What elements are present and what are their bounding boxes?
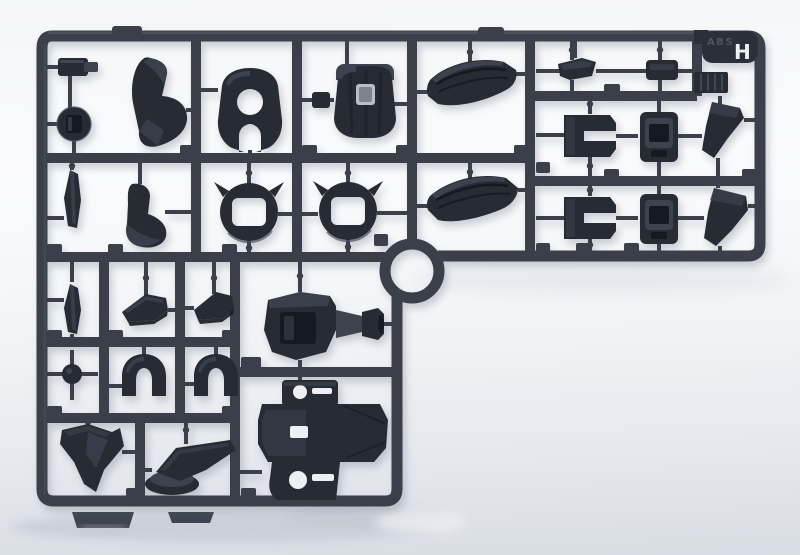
part-torso-core — [258, 380, 388, 500]
part-wedge-vent-left — [122, 294, 168, 326]
runner-letter: H — [734, 40, 751, 64]
part-cylinder-drum — [334, 64, 396, 138]
part-c-bracket-upper — [564, 115, 616, 157]
part-small-cap-right — [646, 60, 678, 80]
top-edge-tab — [478, 27, 504, 36]
runner-photo-canvas: ABS H — [0, 0, 800, 555]
part-hooded-cover — [218, 68, 282, 152]
frame-highlight — [44, 44, 47, 494]
part-foot-with-base — [145, 440, 236, 495]
ridged-block — [694, 72, 728, 93]
part-collar-ring-right — [313, 181, 383, 241]
part-latch-clip — [58, 58, 98, 76]
part-strip-blade-upper — [64, 170, 81, 228]
material-marking-text: ABS — [707, 37, 734, 48]
part-joint-ball — [62, 364, 82, 384]
part-hinge-box-lower — [640, 194, 678, 244]
part-arched-guard-right — [194, 354, 238, 396]
part-skirt-armor-upper — [427, 60, 517, 105]
part-small-cap-left — [558, 58, 596, 80]
part-arrow-claw — [60, 424, 124, 492]
frame-ring-cutout — [385, 244, 439, 298]
part-curved-armor-fin — [132, 57, 187, 146]
photo-model-kit-runner: ABS H — [0, 0, 800, 555]
runner-foot — [72, 512, 134, 528]
part-strip-blade-lower — [64, 284, 81, 334]
runner-foot — [168, 512, 214, 523]
part-round-knob — [57, 107, 91, 141]
part-wedge-vent-right — [194, 292, 234, 324]
part-side-cap — [312, 92, 330, 108]
part-c-bracket-lower — [564, 197, 616, 239]
sprue: ABS H — [42, 26, 760, 501]
part-shin-blade-upper — [702, 102, 744, 158]
part-skirt-armor-lower — [427, 176, 518, 221]
top-edge-tab — [112, 26, 142, 36]
part-collar-ring-left — [214, 182, 284, 242]
part-arched-guard-left — [122, 354, 166, 396]
runner-tag: ABS H — [694, 30, 758, 64]
frame-highlight — [48, 32, 748, 35]
part-shin-blade-lower — [704, 188, 748, 246]
part-hinge-box-upper — [640, 112, 678, 162]
part-backpack-thruster — [264, 292, 384, 360]
part-small-armor-fin — [126, 184, 166, 248]
